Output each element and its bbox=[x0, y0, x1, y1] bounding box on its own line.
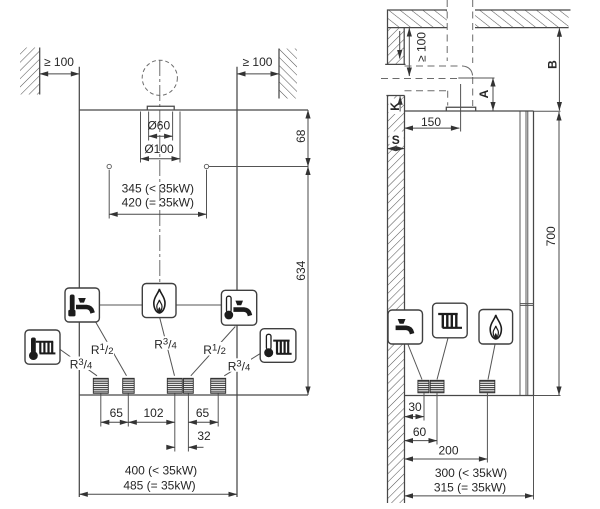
svg-text:400 (< 35kW): 400 (< 35kW) bbox=[125, 464, 197, 478]
svg-text:345 (< 35kW): 345 (< 35kW) bbox=[122, 182, 194, 196]
svg-text:102: 102 bbox=[143, 406, 163, 420]
svg-text:Ø100: Ø100 bbox=[144, 142, 174, 156]
svg-text:B: B bbox=[545, 60, 559, 69]
svg-text:K: K bbox=[388, 102, 402, 111]
svg-text:485 (= 35kW): 485 (= 35kW) bbox=[123, 479, 195, 493]
svg-text:≥ 100: ≥ 100 bbox=[44, 55, 74, 69]
svg-text:32: 32 bbox=[197, 429, 211, 443]
svg-text:65: 65 bbox=[110, 406, 124, 420]
svg-text:420 (= 35kW): 420 (= 35kW) bbox=[122, 196, 194, 210]
svg-text:300 (< 35kW): 300 (< 35kW) bbox=[435, 466, 507, 480]
svg-text:68: 68 bbox=[294, 129, 308, 143]
svg-text:S: S bbox=[392, 133, 400, 147]
svg-text:200: 200 bbox=[438, 444, 458, 458]
svg-text:65: 65 bbox=[196, 406, 210, 420]
svg-text:30: 30 bbox=[408, 400, 422, 414]
svg-text:60: 60 bbox=[413, 425, 427, 439]
svg-text:≥ 100: ≥ 100 bbox=[243, 55, 273, 69]
svg-text:150: 150 bbox=[421, 115, 441, 129]
svg-text:Ø60: Ø60 bbox=[147, 118, 170, 132]
svg-text:A: A bbox=[477, 89, 491, 98]
svg-text:700: 700 bbox=[544, 226, 558, 246]
svg-text:634: 634 bbox=[294, 260, 308, 280]
svg-text:≥ 100: ≥ 100 bbox=[414, 32, 428, 62]
svg-text:315 (= 35kW): 315 (= 35kW) bbox=[434, 481, 506, 495]
